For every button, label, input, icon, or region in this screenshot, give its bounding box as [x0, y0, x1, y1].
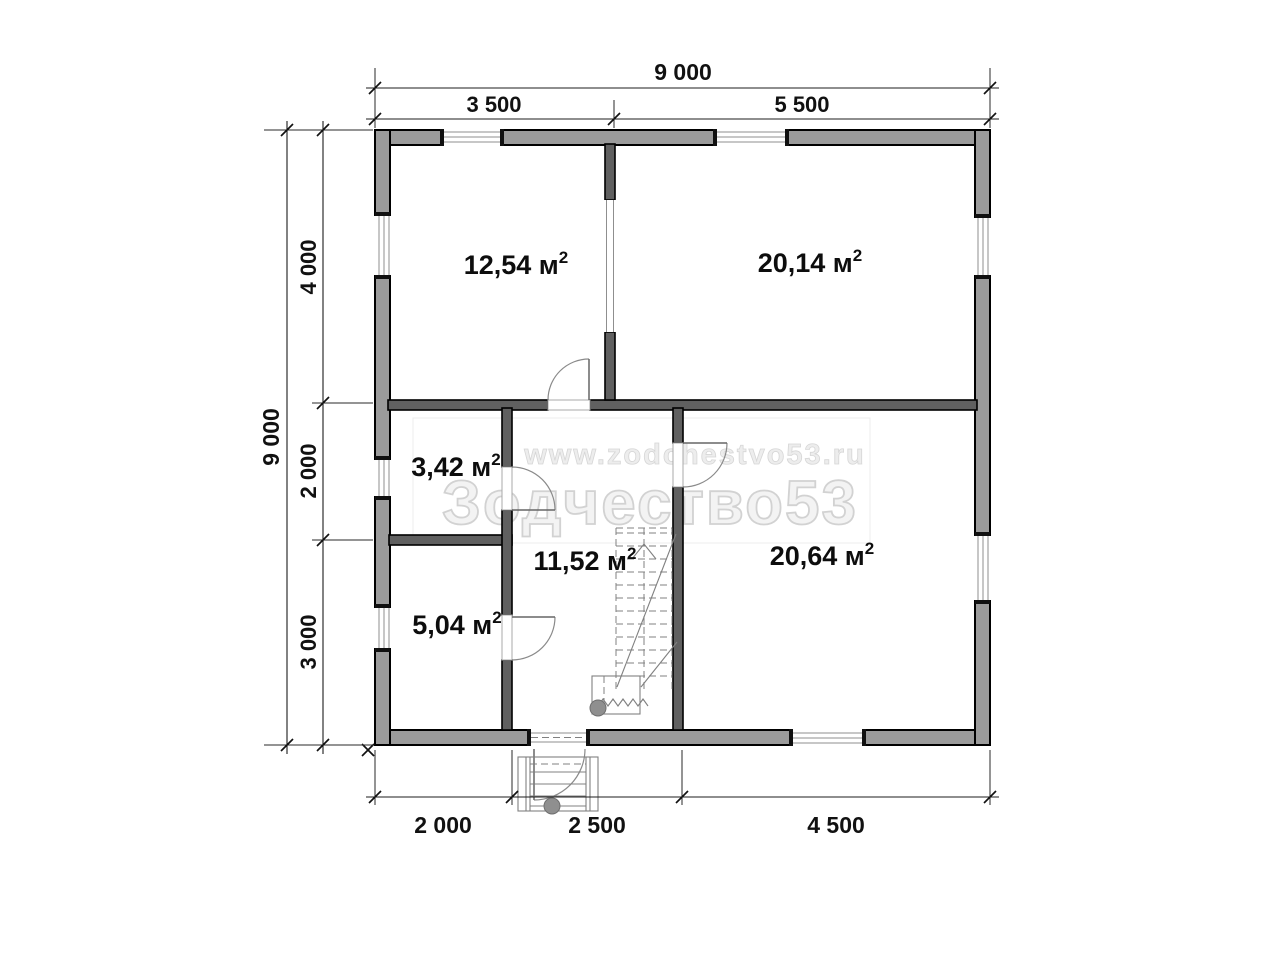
dim-left-seg-1: 4 000: [296, 239, 321, 294]
corner-marker: [362, 744, 374, 756]
dim-top-seg-2: 5 500: [774, 92, 829, 117]
cased-opening: [604, 200, 616, 332]
room-label-top-left: 12,54 м2: [464, 248, 569, 280]
dim-left-seg-2: 2 000: [296, 443, 321, 498]
window-right-2: [974, 532, 991, 604]
floor-plan-drawing: www.zodchestvo53.ru Зодчество53: [0, 0, 1279, 960]
watermark-url: www.zodchestvo53.ru: [523, 439, 866, 471]
dim-bottom-seg-2: 2 500: [568, 812, 626, 838]
dim-bottom-seg-1: 2 000: [414, 812, 472, 838]
window-bottom-1: [789, 728, 866, 747]
dimension-left: 9 000 4 000 2 000 3 000: [258, 121, 373, 754]
porch-post: [544, 798, 560, 814]
dim-left-total: 9 000: [258, 408, 284, 466]
porch: [518, 757, 598, 814]
window-left-3: [374, 604, 391, 652]
dimension-top: 9 000 3 500 5 500: [366, 59, 999, 128]
dim-top-seg-1: 3 500: [466, 92, 521, 117]
room-label-hallway: 11,52 м2: [533, 544, 636, 576]
window-right-1: [974, 214, 991, 279]
dim-top-total: 9 000: [654, 59, 712, 85]
window-top-2: [713, 128, 789, 147]
room-label-bottom-right: 20,64 м2: [770, 539, 875, 571]
window-left-1: [374, 212, 391, 279]
dim-left-seg-3: 3 000: [296, 614, 321, 669]
window-top-1: [440, 128, 504, 147]
door-bottom-left-room: [512, 617, 555, 660]
door-top-left-room: [548, 359, 589, 400]
entrance-opening: [527, 728, 590, 747]
room-label-middle-left: 3,42 м2: [411, 450, 501, 482]
dim-bottom-seg-3: 4 500: [807, 812, 865, 838]
dimension-bottom: 2 000 2 500 4 500: [366, 750, 999, 838]
floor-plan-page: www.zodchestvo53.ru Зодчество53: [0, 0, 1279, 960]
newel-post: [590, 700, 606, 716]
window-left-2: [374, 456, 391, 500]
room-label-bottom-left: 5,04 м2: [412, 608, 502, 640]
room-label-top-right: 20,14 м2: [758, 246, 863, 278]
